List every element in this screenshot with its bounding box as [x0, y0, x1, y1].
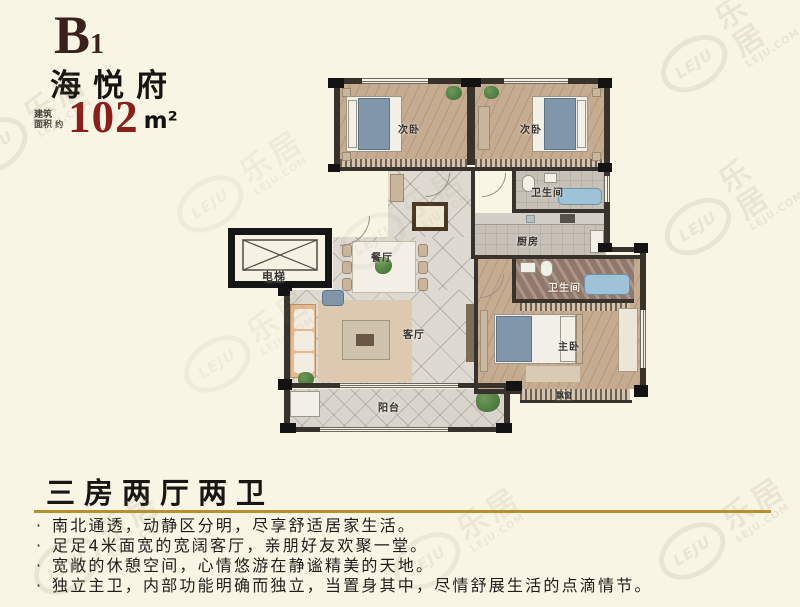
unit-letter: B	[54, 8, 90, 62]
wall-pier	[598, 243, 612, 252]
armchair	[322, 290, 344, 306]
bathtub	[558, 188, 602, 205]
bed-duvet	[358, 98, 390, 150]
nightstand	[592, 88, 601, 97]
bullet-marker-icon: ·	[36, 576, 52, 596]
dining-chair	[342, 261, 352, 274]
window	[362, 78, 428, 84]
dining-chair	[418, 244, 428, 257]
room-label-elevator: 电梯	[262, 268, 286, 284]
plant	[484, 86, 499, 99]
wall-pier	[278, 286, 290, 296]
washer	[290, 391, 320, 417]
wall-pier	[634, 243, 648, 253]
sink	[544, 173, 557, 183]
room-label-bath-master: 卫生间	[548, 279, 581, 294]
wall-pier	[328, 164, 340, 172]
window	[604, 176, 610, 202]
bed-pillows	[577, 100, 586, 148]
wall	[512, 209, 610, 213]
room-label-bedroom-left: 次卧	[398, 121, 420, 136]
wardrobe	[478, 106, 490, 150]
room-label-dining: 餐厅	[371, 249, 393, 264]
wall-pier	[598, 163, 612, 172]
dining-chair	[418, 278, 428, 291]
floorplan-poster: { "header": { "unit": "B", "unit_num": "…	[0, 0, 800, 600]
floor-plan: 次卧 次卧 卫生间 厨房 卫生间 主卧 电梯 餐厅 客厅 阳台 飘窗	[228, 78, 670, 446]
plant	[446, 86, 462, 100]
bullet-marker-icon: ·	[36, 556, 52, 576]
wall	[512, 171, 516, 213]
wall-pier	[461, 78, 481, 87]
wall	[474, 259, 478, 393]
room-label-kitchen: 厨房	[517, 233, 539, 248]
bed-pillows	[348, 100, 357, 148]
unit-number: 1	[90, 27, 104, 62]
wall-pier	[506, 381, 522, 391]
wall	[284, 287, 290, 389]
area-label: 建筑 面积 约	[34, 110, 63, 137]
wall-pier	[496, 423, 512, 433]
room-label-bedroom-right: 次卧	[520, 121, 542, 136]
area-unit: m²	[144, 108, 178, 136]
elevator-x-icon	[242, 239, 318, 271]
bullet-marker-icon: ·	[36, 536, 52, 556]
sofa-cushion	[294, 331, 314, 351]
dining-chair	[342, 278, 352, 291]
wall-pier	[280, 423, 296, 433]
bed-duvet	[544, 98, 576, 150]
leju-watermark: LEJU 乐居 LEJU.COM	[648, 137, 800, 277]
room-label-bay-window: 飘窗	[556, 390, 572, 401]
dining-chair	[342, 244, 352, 257]
room-label-bath-top: 卫生间	[531, 184, 564, 199]
wall-pier	[634, 385, 648, 397]
master-rug	[526, 366, 580, 382]
nightstand	[592, 152, 601, 161]
area-value: 102	[68, 98, 139, 136]
dining-chair	[418, 261, 428, 274]
wall	[467, 78, 475, 165]
feature-bullets: · 南北通透，动静区分明，尽享舒适居家生活。 · 足足4米面宽的宽阔客厅，亲朋好…	[36, 516, 786, 596]
bed-duvet	[496, 316, 532, 362]
room-label-master: 主卧	[558, 338, 580, 353]
room-label-balcony: 阳台	[378, 399, 400, 414]
window	[640, 310, 646, 368]
shoe-cabinet	[390, 174, 404, 202]
sofa-cushion	[294, 353, 314, 373]
wall	[512, 299, 634, 303]
window	[504, 78, 568, 84]
wall	[334, 78, 340, 171]
wall	[471, 171, 475, 259]
sofa-cushion	[294, 309, 314, 329]
feature-bullet: · 独立主卫，内部功能明确而独立，当置身其中，尽情舒展生活的点滴情节。	[36, 576, 786, 596]
nightstand	[342, 152, 351, 161]
entry-mat	[412, 202, 448, 231]
bullet-marker-icon: ·	[36, 516, 52, 536]
wall-pier	[598, 78, 612, 88]
toilet	[540, 260, 553, 277]
gold-divider	[34, 510, 771, 513]
feature-bullet: · 南北通透，动静区分明，尽享舒适居家生活。	[36, 516, 786, 536]
media-band	[480, 310, 488, 372]
stove	[560, 214, 575, 223]
room-label-living: 客厅	[403, 326, 425, 341]
unit-title: B 1	[54, 8, 104, 62]
bathtub	[584, 274, 630, 295]
table-decor	[356, 334, 374, 346]
window	[320, 427, 448, 432]
master-wardrobe	[618, 308, 638, 372]
wall-pier	[278, 379, 292, 390]
sink	[520, 262, 536, 273]
leju-logo-icon: LEJU	[0, 105, 38, 186]
wall-pier	[328, 78, 344, 88]
kitchen-counter	[475, 213, 606, 225]
layout-summary-title: 三房两厅两卫	[46, 470, 274, 512]
feature-bullet: · 足足4米面宽的宽阔客厅，亲朋好友欢聚一堂。	[36, 536, 786, 556]
feature-bullet: · 宽敞的休憩空间，心情悠游在静谧精美的天地。	[36, 556, 786, 576]
wardrobe-band	[520, 303, 630, 311]
kitchen-sink	[526, 215, 535, 223]
wall	[471, 255, 646, 259]
wall	[512, 259, 516, 303]
wall	[520, 400, 632, 403]
area-row: 建筑 面积 约 102 m²	[34, 98, 178, 136]
balcony-slider-window	[340, 383, 458, 388]
door-swing	[482, 173, 506, 197]
